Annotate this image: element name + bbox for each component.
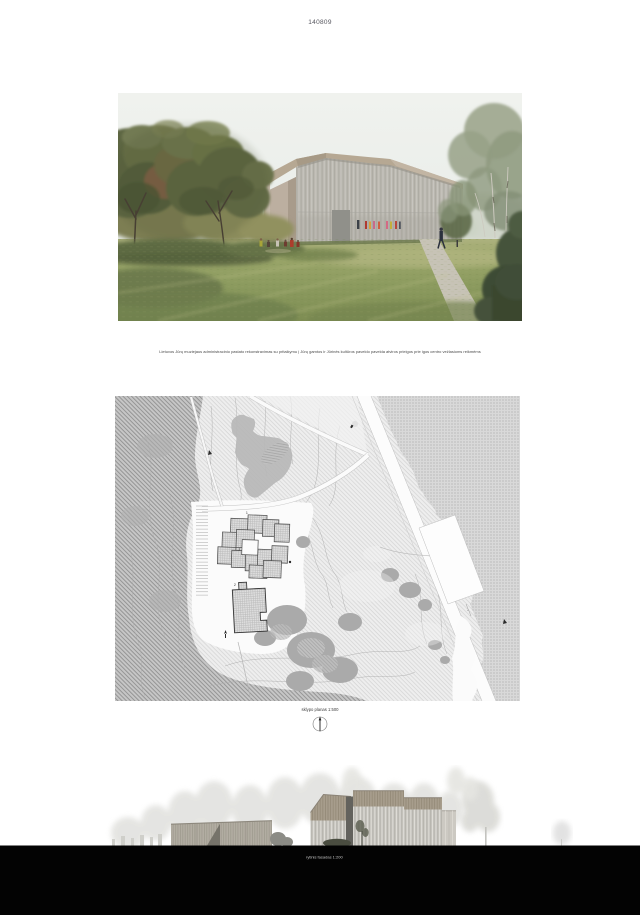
svg-text:rytinis fasadas 1:200: rytinis fasadas 1:200 xyxy=(306,855,343,860)
svg-text:2: 2 xyxy=(234,583,236,587)
svg-text:1: 1 xyxy=(246,511,248,515)
